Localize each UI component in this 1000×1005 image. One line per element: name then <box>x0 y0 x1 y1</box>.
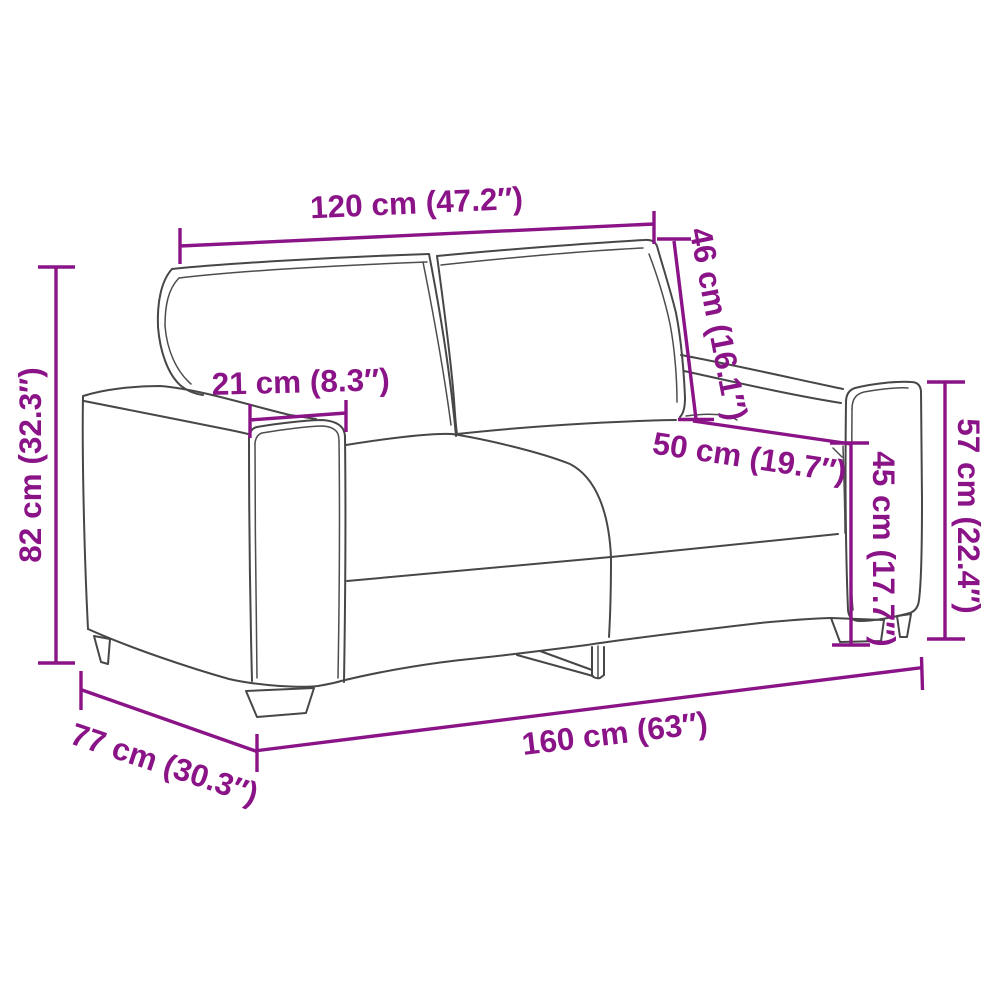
svg-text:82 cm (32.3″): 82 cm (32.3″) <box>12 367 48 562</box>
svg-text:77 cm (30.3″): 77 cm (30.3″) <box>66 715 263 811</box>
svg-text:50 cm (19.7″): 50 cm (19.7″) <box>650 425 849 490</box>
svg-text:57 cm (22.4″): 57 cm (22.4″) <box>951 418 987 613</box>
svg-text:45 cm (17.7″): 45 cm (17.7″) <box>866 451 902 646</box>
svg-text:120 cm (47.2″): 120 cm (47.2″) <box>309 180 523 226</box>
svg-text:21 cm (8.3″): 21 cm (8.3″) <box>211 361 390 402</box>
